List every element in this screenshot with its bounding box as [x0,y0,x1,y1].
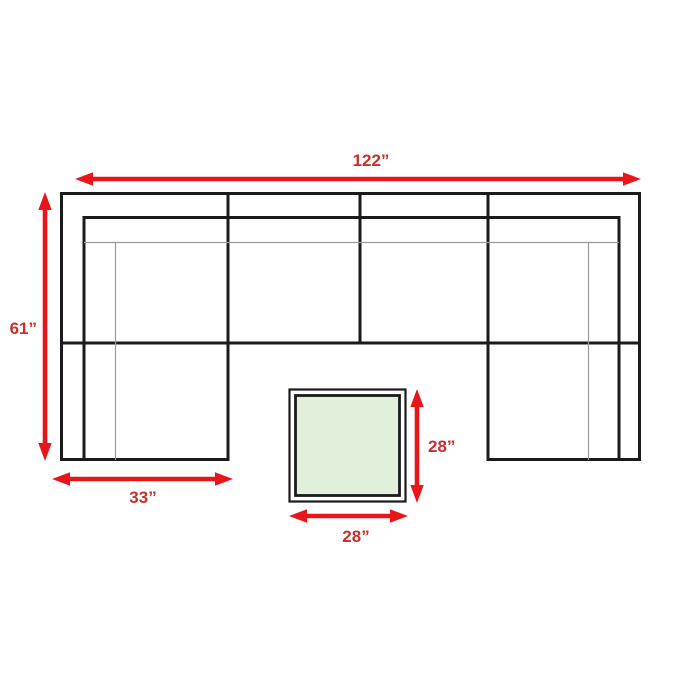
arrow-head-left-icon [289,509,307,522]
arrow-head-bottom-icon [410,485,423,503]
ottoman-width-arrow: 28” [289,509,408,546]
ottoman-depth-arrow: 28” [410,389,455,503]
dimension-diagram: 122” 61” 33” 28” 28” [0,0,700,700]
arrow-head-left-icon [52,472,70,485]
ottoman-depth-label: 28” [428,437,455,456]
arrow-head-left-icon [75,172,93,185]
chaise-width-label: 33” [129,488,156,507]
overall-depth-label: 61” [10,319,37,338]
overall-width-label: 122” [353,151,390,170]
arrow-head-bottom-icon [38,443,51,461]
coffee-table [290,390,406,502]
overall-width-arrow: 122” [75,151,641,186]
coffee-table-top [296,396,400,496]
chaise-width-arrow: 33” [52,472,233,507]
sectional-sofa-plan-svg: 122” 61” 33” 28” 28” [0,0,700,700]
arrow-head-top-icon [410,389,423,407]
overall-depth-arrow: 61” [10,192,52,461]
ottoman-width-label: 28” [342,527,369,546]
arrow-head-right-icon [390,509,408,522]
arrow-head-right-icon [623,172,641,185]
arrow-head-right-icon [215,472,233,485]
arrow-head-top-icon [38,192,51,210]
